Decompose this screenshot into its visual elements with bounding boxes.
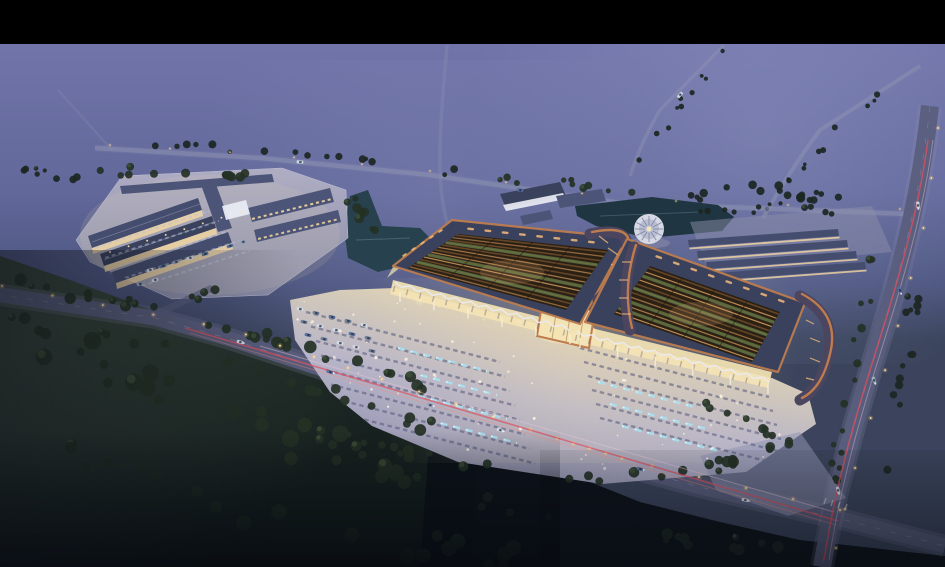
- plaza-light: [303, 301, 305, 303]
- tree: [914, 295, 922, 303]
- plaza-light: [632, 389, 634, 391]
- tree-highlight: [866, 256, 870, 260]
- facade-lamp: [220, 217, 222, 219]
- tree: [181, 169, 190, 178]
- tree: [324, 154, 330, 160]
- tree: [352, 196, 358, 202]
- tree: [724, 184, 730, 190]
- tree: [690, 90, 695, 95]
- tree: [261, 147, 269, 155]
- street-lamp: [870, 417, 872, 419]
- tree: [503, 174, 510, 181]
- plaza-light: [507, 370, 510, 373]
- street-lamp: [492, 416, 494, 418]
- car-glass: [917, 204, 919, 207]
- street-lamp: [361, 164, 362, 165]
- tree: [193, 142, 198, 147]
- plaza-light: [736, 419, 738, 421]
- tree-highlight: [127, 164, 131, 168]
- plaza-light: [379, 376, 381, 378]
- tree: [803, 163, 807, 167]
- tree: [97, 167, 104, 174]
- tree: [818, 191, 824, 197]
- plaza-light: [513, 355, 515, 357]
- plaza-light: [711, 447, 713, 449]
- plaza-light: [350, 382, 352, 384]
- tree: [829, 211, 835, 217]
- tree: [868, 299, 873, 304]
- left-shadow: [0, 250, 300, 567]
- tree: [853, 359, 861, 367]
- tree: [352, 355, 363, 366]
- street-lamp: [897, 325, 899, 327]
- tree: [915, 309, 921, 315]
- tree: [840, 428, 845, 433]
- tree: [628, 189, 635, 196]
- street-lamp: [109, 144, 110, 145]
- tree: [118, 172, 125, 179]
- plaza-light: [710, 424, 712, 426]
- plaza-light: [473, 342, 475, 344]
- tree: [150, 170, 158, 178]
- car-glass: [299, 161, 302, 163]
- plaza-light: [333, 356, 336, 359]
- street-lamp: [787, 204, 788, 205]
- tree: [787, 177, 791, 181]
- plaza-light: [366, 341, 367, 342]
- tree: [174, 144, 179, 149]
- plaza-light: [778, 433, 780, 435]
- tree-highlight: [580, 185, 584, 189]
- plaza-light: [533, 417, 536, 420]
- tree: [700, 189, 708, 197]
- tree: [125, 171, 133, 179]
- tree: [340, 396, 350, 406]
- tree: [796, 193, 804, 201]
- street-lamp: [455, 403, 457, 405]
- tree: [442, 172, 447, 177]
- tree-highlight: [344, 199, 348, 203]
- tree: [751, 210, 756, 215]
- rendering-viewport: [0, 0, 945, 567]
- tree: [704, 208, 711, 215]
- tree: [909, 351, 916, 358]
- plaza-light: [662, 444, 663, 445]
- tree-highlight: [744, 416, 747, 419]
- tree: [561, 177, 566, 182]
- car-glass: [519, 189, 522, 191]
- tree: [335, 153, 342, 160]
- tree: [606, 188, 611, 193]
- plaza-light: [736, 402, 738, 404]
- tree: [756, 204, 761, 209]
- tree: [832, 124, 838, 130]
- round-pavilion-light: [647, 227, 652, 232]
- tree: [814, 190, 819, 195]
- plaza-light: [434, 375, 436, 377]
- plaza-light: [614, 395, 615, 396]
- facade-lamp: [239, 211, 241, 213]
- plaza-light: [617, 435, 619, 437]
- tree: [675, 106, 679, 110]
- tree: [21, 167, 28, 174]
- plaza-light: [451, 340, 454, 343]
- tree: [331, 384, 341, 394]
- letterbox-bar: [0, 0, 945, 44]
- tree-highlight: [355, 214, 360, 219]
- facade-lamp: [165, 234, 167, 236]
- tree: [359, 155, 367, 163]
- tree: [73, 173, 81, 181]
- plaza-light: [683, 433, 685, 435]
- plaza-light: [622, 379, 625, 382]
- tree: [802, 166, 807, 171]
- tree: [697, 197, 703, 203]
- tree: [835, 194, 842, 201]
- tree: [758, 424, 767, 433]
- plaza-light: [370, 388, 373, 391]
- tree: [514, 180, 520, 186]
- tree: [698, 209, 703, 214]
- tree: [820, 147, 826, 153]
- plaza-light: [397, 303, 399, 305]
- tree: [293, 149, 299, 155]
- tree: [208, 140, 216, 148]
- tree-highlight: [406, 372, 412, 378]
- tree: [450, 165, 458, 173]
- plaza-light: [625, 358, 627, 360]
- plaza-light: [531, 382, 533, 384]
- tree: [654, 131, 660, 137]
- tree: [53, 175, 60, 182]
- plaza-light: [404, 308, 406, 310]
- tree: [822, 209, 828, 215]
- tree: [865, 104, 870, 109]
- plaza-light: [701, 443, 703, 445]
- street-lamp: [381, 378, 383, 380]
- scene-canvas: [0, 0, 945, 567]
- plaza-light: [352, 313, 354, 315]
- tree-highlight: [802, 205, 805, 208]
- tree: [304, 341, 317, 354]
- tree: [35, 171, 40, 176]
- tree: [778, 201, 782, 205]
- tree: [700, 74, 704, 78]
- tree: [810, 196, 818, 204]
- tree: [908, 307, 913, 312]
- tree: [368, 402, 376, 410]
- tree: [852, 377, 857, 382]
- tree: [874, 91, 880, 97]
- street-lamp: [293, 157, 294, 158]
- tree: [568, 177, 574, 183]
- tree: [411, 380, 423, 392]
- tree: [371, 226, 379, 234]
- tree-highlight: [34, 166, 36, 168]
- courtyard-glow: [669, 302, 733, 326]
- tree-highlight: [498, 177, 501, 180]
- plaza-light: [486, 392, 488, 394]
- tree: [851, 337, 856, 342]
- street-lamp: [930, 177, 932, 179]
- street-lamp: [922, 227, 924, 229]
- street-lamp: [675, 200, 676, 201]
- tree: [785, 437, 793, 445]
- plaza-light: [478, 380, 481, 383]
- plaza-light: [393, 320, 395, 322]
- tree: [748, 181, 757, 190]
- facade-lamp: [146, 240, 148, 242]
- tree: [688, 192, 695, 199]
- plaza-light: [719, 395, 722, 398]
- tree: [840, 400, 848, 408]
- tree-highlight: [703, 400, 707, 404]
- tree: [732, 209, 737, 214]
- tree: [722, 207, 727, 212]
- tree: [724, 410, 731, 417]
- street-lamp: [581, 193, 582, 194]
- plaza-light: [483, 319, 484, 320]
- tree: [183, 141, 191, 149]
- tree: [808, 204, 814, 210]
- tree: [704, 77, 708, 81]
- tree: [720, 49, 724, 53]
- street-lamp: [313, 356, 315, 358]
- tree-highlight: [905, 294, 908, 297]
- bottom-shadow-right: [540, 450, 945, 567]
- tree: [224, 171, 234, 181]
- tree: [890, 391, 897, 398]
- tree: [368, 158, 375, 165]
- car: [296, 160, 303, 164]
- tree: [774, 181, 783, 190]
- facade-lamp: [128, 245, 130, 247]
- tree: [305, 385, 316, 396]
- tree-highlight: [384, 369, 388, 373]
- plaza-light: [374, 356, 377, 359]
- plaza-light: [405, 358, 408, 361]
- tree: [241, 169, 250, 178]
- tree-highlight: [707, 405, 711, 409]
- plaza-light: [387, 406, 389, 408]
- tree: [831, 442, 837, 448]
- street-lamp: [505, 182, 506, 183]
- tree: [304, 152, 311, 159]
- tree: [897, 402, 903, 408]
- street-lamp: [229, 152, 230, 153]
- plaza-light: [358, 372, 360, 374]
- street-lamp: [937, 127, 939, 129]
- tree: [679, 104, 685, 110]
- street-lamp: [884, 369, 886, 371]
- tree: [636, 157, 641, 162]
- street-lamp: [899, 208, 900, 209]
- facade-lamp: [202, 222, 204, 224]
- street-lamp: [429, 170, 430, 171]
- street-lamp: [169, 148, 170, 149]
- courtyard-glow: [480, 260, 544, 284]
- tree: [896, 374, 904, 382]
- street-lamp: [347, 367, 349, 369]
- tree: [857, 324, 866, 333]
- facade-lamp: [183, 228, 185, 230]
- tree: [666, 125, 671, 130]
- tree: [152, 142, 159, 149]
- tree: [756, 187, 764, 195]
- tree: [43, 168, 47, 172]
- tree: [873, 99, 877, 103]
- tree-highlight: [322, 356, 326, 360]
- plaza-light: [311, 320, 314, 323]
- tree: [784, 191, 792, 199]
- tree: [858, 301, 864, 307]
- tree: [900, 363, 905, 368]
- plaza-light: [419, 323, 421, 325]
- street-lamp: [910, 277, 912, 279]
